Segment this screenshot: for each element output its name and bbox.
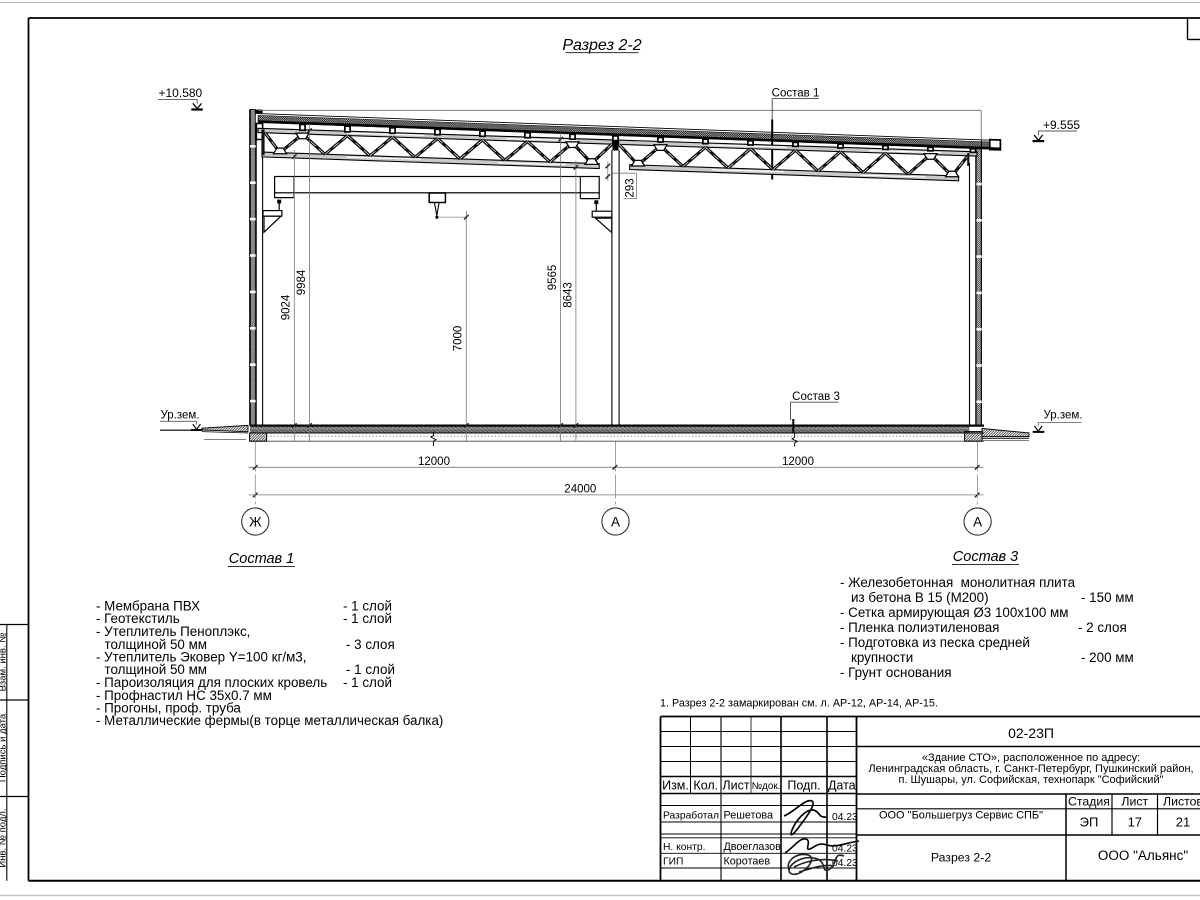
svg-text:Разработал: Разработал xyxy=(663,810,719,822)
svg-text:21: 21 xyxy=(1176,815,1190,830)
svg-text:- Пленка полиэтиленовая: - Пленка полиэтиленовая xyxy=(840,620,999,635)
svg-text:Лист: Лист xyxy=(722,779,749,793)
svg-text:Изм.: Изм. xyxy=(662,779,689,793)
svg-text:ООО "Большегруз Сервис СПБ": ООО "Большегруз Сервис СПБ" xyxy=(879,810,1043,822)
svg-text:+10.580: +10.580 xyxy=(159,86,203,100)
svg-text:- Металлические фермы(в торце: - Металлические фермы(в торце металличес… xyxy=(96,713,443,728)
svg-text:- Грунт основания: - Грунт основания xyxy=(840,665,951,680)
svg-text:Листов: Листов xyxy=(1163,794,1200,808)
svg-text:12000: 12000 xyxy=(782,456,814,468)
svg-text:ГИП: ГИП xyxy=(663,857,683,868)
svg-text:ООО "Альянс": ООО "Альянс" xyxy=(1098,848,1188,863)
svg-text:- 2 слоя: - 2 слоя xyxy=(1078,620,1127,635)
svg-text:Взам. инв. №: Взам. инв. № xyxy=(0,633,9,692)
svg-text:Лист: Лист xyxy=(1121,794,1148,808)
svg-text:Подпись и дата: Подпись и дата xyxy=(0,713,9,782)
svg-text:Н. контр.: Н. контр. xyxy=(663,842,706,853)
svg-text:Состав 1: Состав 1 xyxy=(229,551,294,567)
svg-text:Состав 3: Состав 3 xyxy=(792,391,840,403)
svg-text:Ж: Ж xyxy=(249,514,262,529)
svg-text:Разрез 2-2: Разрез 2-2 xyxy=(562,37,641,54)
svg-text:9565: 9565 xyxy=(547,265,559,291)
svg-text:крупности: крупности xyxy=(851,650,913,665)
svg-text:- 150 мм: - 150 мм xyxy=(1081,590,1134,605)
svg-text:8643: 8643 xyxy=(562,282,574,308)
svg-text:Разрез 2-2: Разрез 2-2 xyxy=(931,851,992,865)
svg-text:1. Разрез 2-2 замаркирован см.: 1. Разрез 2-2 замаркирован см. л. АР-12,… xyxy=(660,698,938,710)
svg-text:Инв. № подл.: Инв. № подл. xyxy=(0,808,9,867)
svg-text:- 200 мм: - 200 мм xyxy=(1081,650,1134,665)
svg-text:9984: 9984 xyxy=(296,269,308,295)
svg-text:Состав 1: Состав 1 xyxy=(772,88,820,100)
svg-text:04.23: 04.23 xyxy=(832,812,858,823)
svg-text:№док.: №док. xyxy=(752,781,781,792)
svg-text:9024: 9024 xyxy=(281,294,293,320)
svg-text:А: А xyxy=(611,514,620,529)
svg-text:п. Шушары, ул. Софийская, техн: п. Шушары, ул. Софийская, технопарк "Соф… xyxy=(898,774,1163,786)
svg-text:12000: 12000 xyxy=(418,456,450,468)
svg-text:Ур.зем.: Ур.зем. xyxy=(161,409,200,421)
svg-text:- Железобетонная монолитная п: - Железобетонная монолитная плита xyxy=(840,575,1076,590)
svg-text:17: 17 xyxy=(1128,815,1142,830)
svg-text:Состав 3: Состав 3 xyxy=(953,549,1018,565)
svg-text:24000: 24000 xyxy=(564,484,596,496)
svg-text:- 1 слой: - 1 слой xyxy=(343,611,392,626)
svg-text:Решетова: Решетова xyxy=(724,810,774,822)
svg-text:7000: 7000 xyxy=(453,326,465,352)
svg-text:Двоеглазов: Двоеглазов xyxy=(724,841,782,853)
svg-text:ЭП: ЭП xyxy=(1080,815,1099,830)
svg-text:293: 293 xyxy=(625,178,637,197)
svg-text:Дата: Дата xyxy=(828,779,856,793)
svg-text:- Подготовка из песка средней: - Подготовка из песка средней xyxy=(840,635,1030,650)
svg-text:Ур.зем.: Ур.зем. xyxy=(1044,410,1083,422)
svg-text:+9.555: +9.555 xyxy=(1043,118,1080,132)
svg-text:Кол.: Кол. xyxy=(693,779,718,793)
svg-text:Стадия: Стадия xyxy=(1068,794,1110,808)
svg-text:Коротаев: Коротаев xyxy=(724,856,771,868)
svg-text:02-23П: 02-23П xyxy=(1008,725,1054,741)
svg-text:Подп.: Подп. xyxy=(787,779,820,793)
svg-text:- 3 слоя: - 3 слоя xyxy=(346,637,395,652)
svg-text:- Сетка армирующая Ø3 100х100: - Сетка армирующая Ø3 100х100 мм xyxy=(840,605,1068,620)
svg-text:из бетона В 15 (М200): из бетона В 15 (М200) xyxy=(851,590,989,605)
svg-text:А: А xyxy=(973,514,982,529)
svg-text:- 1 слой: - 1 слой xyxy=(343,675,392,690)
